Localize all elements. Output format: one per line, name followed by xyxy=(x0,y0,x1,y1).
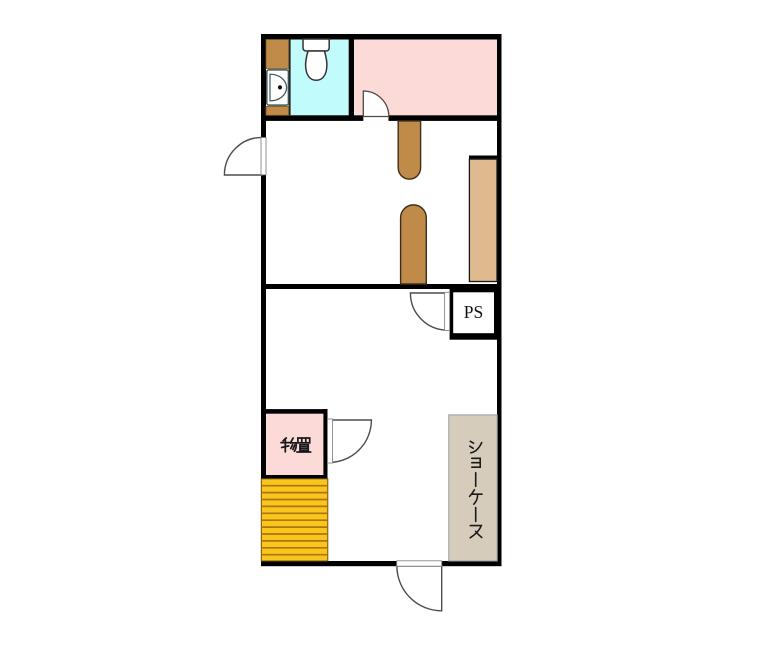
svg-text:PS: PS xyxy=(464,302,483,322)
